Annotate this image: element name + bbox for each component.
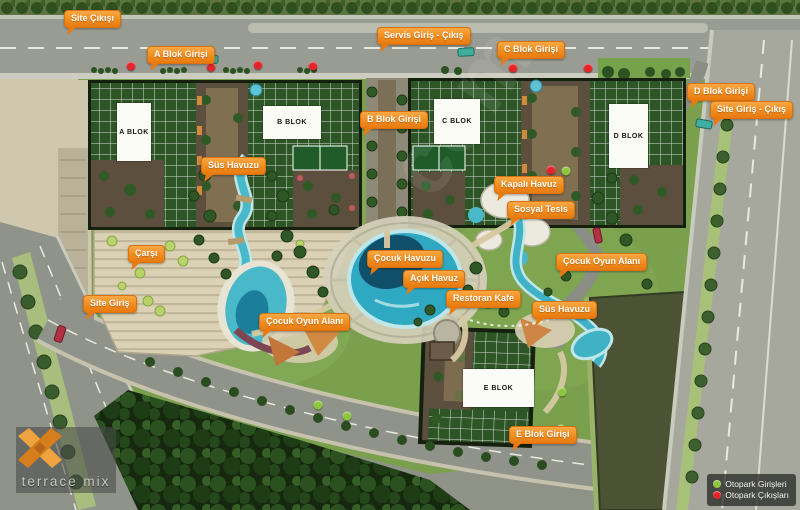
parking-entrance-marker [558, 388, 567, 397]
map-callout-label: Site Giriş - Çıkış [710, 101, 793, 119]
block-label: B BLOK [263, 106, 321, 139]
map-callout-label: Açık Havuz [403, 270, 465, 288]
parking-exit-marker [309, 62, 318, 71]
block-label: C BLOK [434, 99, 480, 144]
map-callout-label: Site Çıkışı [64, 10, 121, 28]
map-callout-label: A Blok Girişi [147, 46, 215, 64]
legend: Otopark GirişleriOtopark Çıkışları [707, 474, 796, 506]
labels-layer: Site ÇıkışıA Blok GirişiServis Giriş - Ç… [0, 0, 800, 510]
map-callout-label: Kapalı Havuz [494, 176, 564, 194]
map-callout-label: Çocuk Havuzu [367, 250, 443, 268]
map-callout-label: D Blok Girişi [687, 83, 755, 101]
parking-exit-marker [547, 166, 556, 175]
map-callout-label: Servis Giriş - Çıkış [377, 27, 471, 45]
map-callout-label: Süs Havuzu [532, 301, 597, 319]
map-callout-label: Süs Havuzu [201, 157, 266, 175]
map-callout-label: C Blok Girişi [497, 41, 565, 59]
parking-exit-marker [509, 64, 518, 73]
map-callout-label: B Blok Girişi [360, 111, 428, 129]
parking-entrance-marker [343, 412, 352, 421]
legend-item: Otopark Girişleri [713, 479, 789, 489]
logo-x-icon [16, 427, 64, 469]
block-label: A BLOK [117, 103, 151, 161]
legend-item: Otopark Çıkışları [713, 490, 789, 500]
parking-entrance-marker [562, 167, 571, 176]
legend-dot [713, 491, 721, 499]
parking-exit-marker [127, 62, 136, 71]
map-callout-label: Çarşı [128, 245, 165, 263]
legend-label: Otopark Girişleri [725, 479, 786, 489]
map-callout-label: E Blok Girişi [509, 426, 577, 444]
parking-exit-marker [584, 64, 593, 73]
legend-dot [713, 480, 721, 488]
brand-name: terrace mix [22, 474, 111, 489]
map-callout-label: Çocuk Oyun Alanı [259, 313, 350, 331]
map-callout-label: Sosyal Tesis [507, 201, 575, 219]
parking-entrance-marker [314, 401, 323, 410]
site-plan: com Site ÇıkışıA Blok GirişiServis Giriş… [0, 0, 800, 510]
map-callout-label: Site Giriş [83, 295, 137, 313]
legend-label: Otopark Çıkışları [725, 490, 789, 500]
block-label: E BLOK [463, 369, 534, 407]
logo-panel: terrace mix [16, 427, 116, 493]
map-callout-label: Restoran Kafe [446, 290, 521, 308]
block-label: D BLOK [609, 104, 648, 168]
parking-exit-marker [254, 61, 263, 70]
map-callout-label: Çocuk Oyun Alanı [556, 253, 647, 271]
